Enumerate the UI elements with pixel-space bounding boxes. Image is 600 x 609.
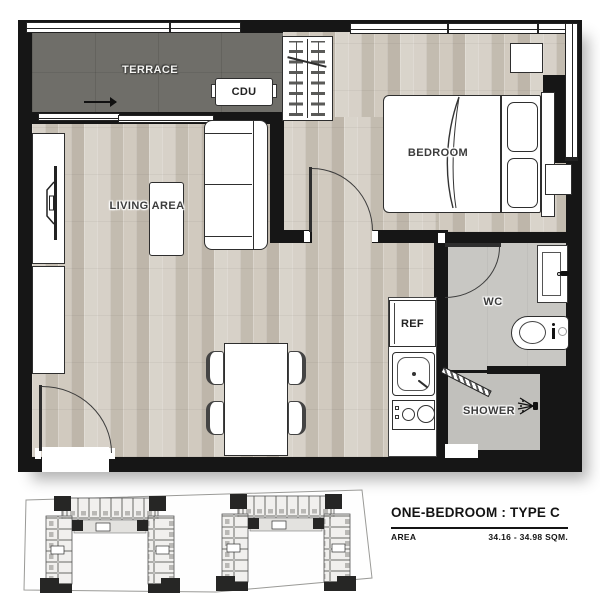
- shower-label: SHOWER: [463, 405, 515, 417]
- title-rule: [391, 527, 568, 529]
- shower-head-icon: [517, 395, 539, 417]
- pillow: [507, 158, 538, 208]
- area-row: AREA 34.16 - 34.98 SQM.: [391, 532, 568, 542]
- dining-chair: [288, 351, 306, 385]
- bedroom-window-top: [350, 23, 568, 34]
- cdu-label: CDU: [232, 86, 257, 98]
- door-jamb: [372, 231, 378, 242]
- dining-table: [224, 343, 288, 456]
- faucet-icon: [557, 272, 561, 276]
- storage-cabinet: [32, 266, 65, 374]
- wardrobe-hangers: [308, 41, 328, 116]
- stove-burner: [402, 408, 415, 421]
- sofa-backrest: [253, 121, 267, 249]
- wardrobe-hangers: [286, 41, 306, 116]
- toilet-bowl: [519, 321, 546, 344]
- floorplan-page: CDU REF: [0, 0, 600, 609]
- sofa: [204, 120, 268, 250]
- cdu-unit: CDU: [215, 78, 273, 106]
- kitchen-sink: [392, 352, 435, 396]
- area-value: 34.16 - 34.98 SQM.: [488, 532, 568, 542]
- area-label: AREA: [391, 532, 416, 542]
- door-jamb: [304, 231, 310, 242]
- stove-burner: [417, 405, 435, 423]
- wc-label: WC: [483, 296, 502, 308]
- bedroom-label: BEDROOM: [408, 147, 468, 159]
- dining-chair: [206, 401, 224, 435]
- vanity-basin: [537, 245, 568, 303]
- door-jamb: [438, 233, 445, 243]
- refrigerator: REF: [389, 300, 436, 347]
- terrace-label: TERRACE: [122, 64, 178, 76]
- sofa-cushion-divider: [205, 184, 252, 185]
- nightstand: [510, 43, 543, 73]
- dining-chair: [288, 401, 306, 435]
- coffee-table: [149, 182, 184, 256]
- tv-console: [32, 133, 65, 264]
- tv-icon: [42, 166, 60, 240]
- faucet-icon: [412, 372, 416, 376]
- sofa-armrest: [205, 133, 252, 134]
- wall: [270, 112, 284, 243]
- toilet: [511, 316, 569, 350]
- wall: [540, 367, 582, 472]
- faucet-icon: [560, 271, 569, 276]
- mattress-line: [500, 96, 502, 212]
- stove-knob: [395, 415, 399, 419]
- pillow: [507, 102, 538, 152]
- stove-knob: [395, 406, 399, 410]
- flow-arrow-icon: [84, 101, 116, 103]
- wc-door-leaf: [445, 243, 501, 247]
- shower-notch: [445, 444, 478, 458]
- terrace-railing: [26, 22, 241, 33]
- bedroom-window-right: [565, 23, 578, 161]
- terrace-sliding-door: [38, 113, 120, 121]
- living-area-label: LIVING AREA: [110, 200, 185, 212]
- wardrobe-divider: [307, 39, 308, 118]
- nightstand: [545, 164, 572, 195]
- stove: [392, 400, 435, 430]
- site-plan: [10, 486, 380, 608]
- dining-chair: [206, 351, 224, 385]
- sofa-armrest: [205, 236, 252, 237]
- terrace-sliding-door: [118, 115, 214, 123]
- wardrobe: [282, 36, 333, 121]
- headboard: [541, 92, 555, 217]
- ref-label: REF: [401, 318, 424, 330]
- unit-type-title: ONE-BEDROOM : TYPE C: [391, 505, 560, 520]
